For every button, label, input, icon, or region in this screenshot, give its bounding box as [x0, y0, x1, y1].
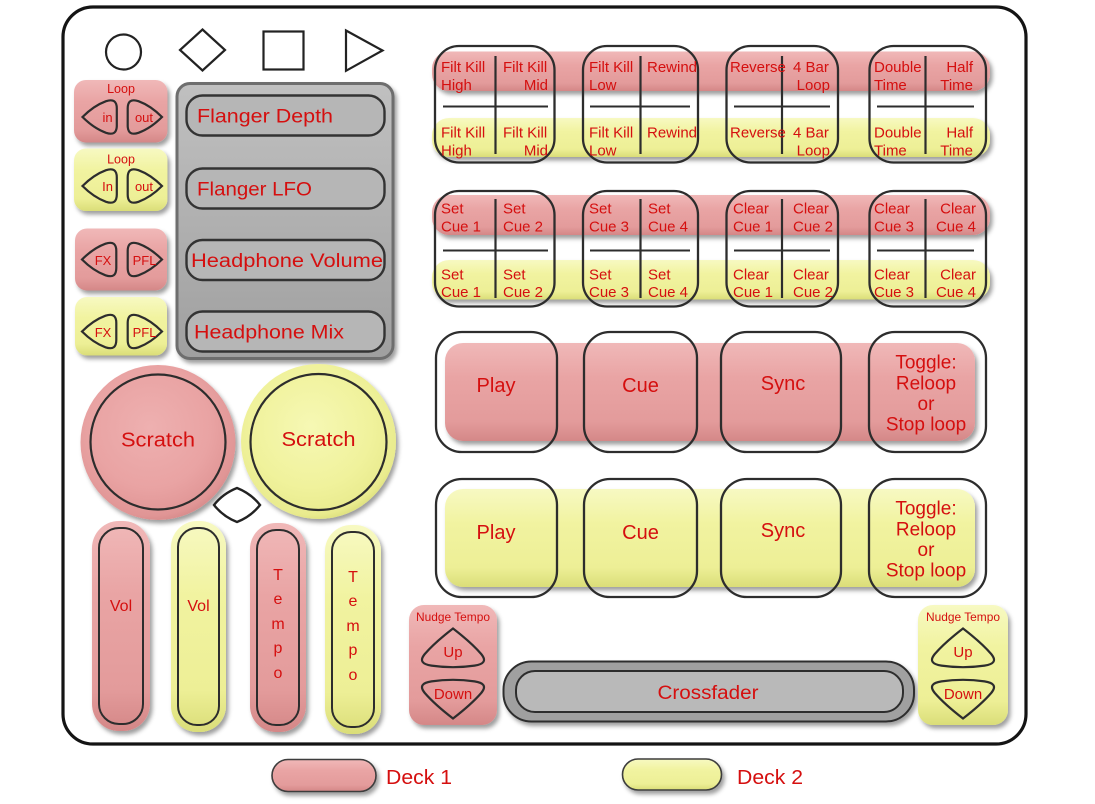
svg-text:Filt Kill: Filt Kill	[441, 59, 485, 76]
svg-text:Down: Down	[944, 686, 982, 703]
svg-text:p: p	[349, 642, 358, 659]
svg-text:Cue 2: Cue 2	[793, 284, 833, 301]
svg-text:Set: Set	[589, 267, 612, 284]
svg-text:Cue 1: Cue 1	[441, 284, 481, 301]
svg-text:Toggle:: Toggle:	[895, 353, 956, 374]
svg-text:Cue 1: Cue 1	[733, 219, 773, 236]
svg-text:High: High	[441, 143, 472, 160]
svg-text:Rewind: Rewind	[647, 125, 697, 142]
svg-text:T: T	[348, 569, 358, 586]
svg-text:Sync: Sync	[761, 520, 805, 542]
svg-text:Clear: Clear	[733, 201, 769, 218]
svg-text:Cue 2: Cue 2	[793, 219, 833, 236]
svg-text:Time: Time	[940, 77, 973, 94]
svg-text:Flanger Depth: Flanger Depth	[197, 107, 333, 128]
svg-text:Deck 2: Deck 2	[737, 767, 803, 789]
svg-text:Cue 4: Cue 4	[936, 284, 976, 301]
svg-text:Reloop: Reloop	[896, 374, 956, 395]
svg-text:Double: Double	[874, 59, 922, 76]
svg-text:Low: Low	[589, 143, 617, 160]
svg-text:m: m	[346, 618, 359, 635]
svg-text:Filt Kill: Filt Kill	[503, 125, 547, 142]
svg-text:out: out	[135, 110, 153, 125]
svg-text:Play: Play	[477, 375, 516, 397]
svg-text:Reloop: Reloop	[896, 520, 956, 541]
svg-text:Clear: Clear	[874, 267, 910, 284]
svg-text:Reverse: Reverse	[730, 125, 786, 142]
svg-text:Mid: Mid	[524, 77, 548, 94]
svg-text:Cue 1: Cue 1	[441, 219, 481, 236]
svg-text:Play: Play	[477, 522, 516, 544]
svg-text:Set: Set	[441, 267, 464, 284]
svg-text:Time: Time	[940, 143, 973, 160]
svg-text:Set: Set	[503, 267, 526, 284]
svg-text:Cue 4: Cue 4	[648, 284, 688, 301]
svg-text:Clear: Clear	[793, 267, 829, 284]
svg-text:Nudge Tempo: Nudge Tempo	[926, 610, 1000, 624]
svg-text:Cue 3: Cue 3	[874, 219, 914, 236]
svg-text:FX: FX	[95, 253, 112, 268]
svg-text:4 Bar: 4 Bar	[793, 125, 829, 142]
svg-text:Reverse: Reverse	[730, 59, 786, 76]
svg-text:Mid: Mid	[524, 143, 548, 160]
svg-text:Filt Kill: Filt Kill	[503, 59, 547, 76]
svg-text:Sync: Sync	[761, 373, 805, 395]
svg-text:o: o	[349, 667, 358, 684]
svg-text:out: out	[135, 179, 153, 194]
svg-text:m: m	[271, 616, 284, 633]
svg-text:Crossfader: Crossfader	[658, 683, 760, 704]
svg-text:Scratch: Scratch	[121, 430, 195, 452]
svg-text:Set: Set	[441, 201, 464, 218]
svg-text:Flanger LFO: Flanger LFO	[197, 180, 312, 201]
svg-text:Cue 4: Cue 4	[936, 219, 976, 236]
svg-text:Clear: Clear	[733, 267, 769, 284]
svg-text:Vol: Vol	[110, 598, 132, 615]
svg-text:PFL: PFL	[133, 253, 157, 268]
svg-text:Up: Up	[443, 644, 462, 661]
svg-text:Rewind: Rewind	[647, 59, 697, 76]
svg-text:o: o	[274, 665, 283, 682]
svg-text:Up: Up	[953, 644, 972, 661]
svg-text:Filt Kill: Filt Kill	[589, 125, 633, 142]
svg-text:Low: Low	[589, 77, 617, 94]
svg-text:Loop: Loop	[107, 82, 135, 96]
svg-text:Filt Kill: Filt Kill	[589, 59, 633, 76]
svg-text:Headphone Volume: Headphone Volume	[191, 251, 383, 272]
svg-text:or: or	[918, 394, 936, 415]
svg-text:Loop: Loop	[107, 153, 135, 167]
svg-text:Time: Time	[874, 77, 907, 94]
svg-text:Headphone Mix: Headphone Mix	[194, 323, 345, 344]
svg-text:e: e	[349, 593, 358, 610]
svg-text:Set: Set	[648, 201, 671, 218]
svg-text:Clear: Clear	[940, 201, 976, 218]
svg-text:Time: Time	[874, 143, 907, 160]
svg-text:Cue 2: Cue 2	[503, 284, 543, 301]
svg-text:Stop loop: Stop loop	[886, 561, 966, 582]
svg-text:Set: Set	[589, 201, 612, 218]
svg-text:Double: Double	[874, 125, 922, 142]
svg-text:Down: Down	[434, 686, 472, 703]
svg-text:In: In	[102, 179, 113, 194]
svg-text:FX: FX	[95, 325, 112, 340]
svg-text:Cue 3: Cue 3	[874, 284, 914, 301]
svg-text:High: High	[441, 77, 472, 94]
svg-text:Set: Set	[648, 267, 671, 284]
svg-text:Scratch: Scratch	[282, 429, 356, 451]
svg-text:Clear: Clear	[874, 201, 910, 218]
svg-text:Deck 1: Deck 1	[386, 767, 452, 789]
svg-text:Clear: Clear	[940, 267, 976, 284]
svg-text:Half: Half	[946, 125, 974, 142]
svg-text:Cue 4: Cue 4	[648, 219, 688, 236]
svg-text:Nudge Tempo: Nudge Tempo	[416, 610, 490, 624]
svg-text:Stop loop: Stop loop	[886, 415, 966, 436]
svg-text:Loop: Loop	[797, 143, 830, 160]
svg-text:p: p	[274, 640, 283, 657]
svg-text:Cue: Cue	[622, 522, 659, 544]
svg-text:in: in	[102, 110, 112, 125]
svg-text:or: or	[918, 540, 936, 561]
svg-text:Cue 1: Cue 1	[733, 284, 773, 301]
svg-text:Cue: Cue	[622, 375, 659, 397]
svg-text:Cue 2: Cue 2	[503, 219, 543, 236]
svg-text:e: e	[274, 591, 283, 608]
svg-text:Vol: Vol	[187, 598, 209, 615]
svg-text:Toggle:: Toggle:	[895, 499, 956, 520]
svg-text:4 Bar: 4 Bar	[793, 59, 829, 76]
svg-text:Clear: Clear	[793, 201, 829, 218]
svg-text:Loop: Loop	[797, 77, 830, 94]
svg-text:Filt Kill: Filt Kill	[441, 125, 485, 142]
svg-text:Cue 3: Cue 3	[589, 219, 629, 236]
svg-text:PFL: PFL	[133, 325, 157, 340]
svg-text:Cue 3: Cue 3	[589, 284, 629, 301]
svg-text:Half: Half	[946, 59, 974, 76]
svg-text:Set: Set	[503, 201, 526, 218]
svg-text:T: T	[273, 567, 283, 584]
